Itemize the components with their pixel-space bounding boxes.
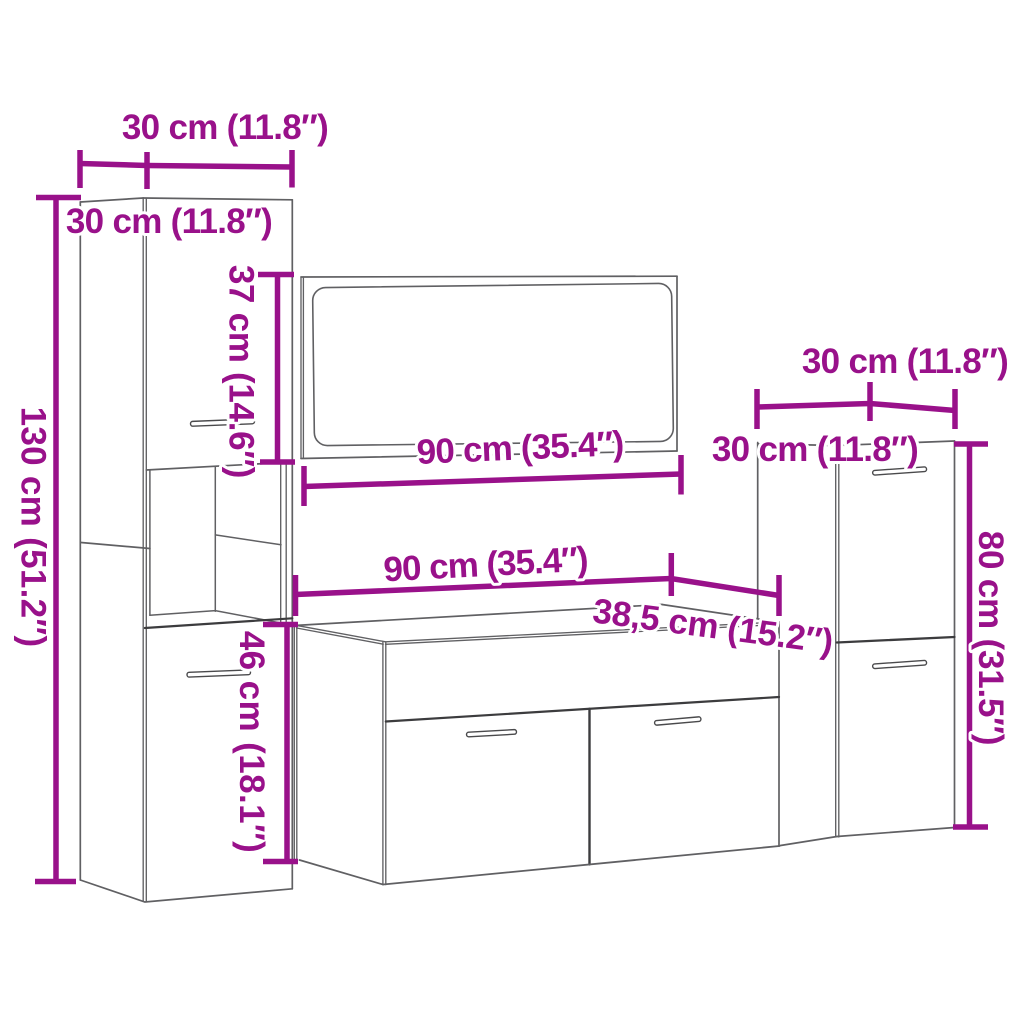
- svg-text:130 cm (51.2″): 130 cm (51.2″): [14, 407, 53, 648]
- svg-text:30 cm (11.8″): 30 cm (11.8″): [122, 108, 328, 147]
- svg-text:80 cm (31.5″): 80 cm (31.5″): [971, 531, 1010, 746]
- svg-text:46 cm (18.1″): 46 cm (18.1″): [232, 631, 271, 853]
- svg-text:30 cm (11.8″): 30 cm (11.8″): [802, 342, 1008, 381]
- svg-text:37 cm (14.6″): 37 cm (14.6″): [222, 265, 261, 478]
- svg-text:30 cm (11.8″): 30 cm (11.8″): [66, 202, 272, 241]
- svg-text:30 cm (11.8″): 30 cm (11.8″): [712, 430, 918, 469]
